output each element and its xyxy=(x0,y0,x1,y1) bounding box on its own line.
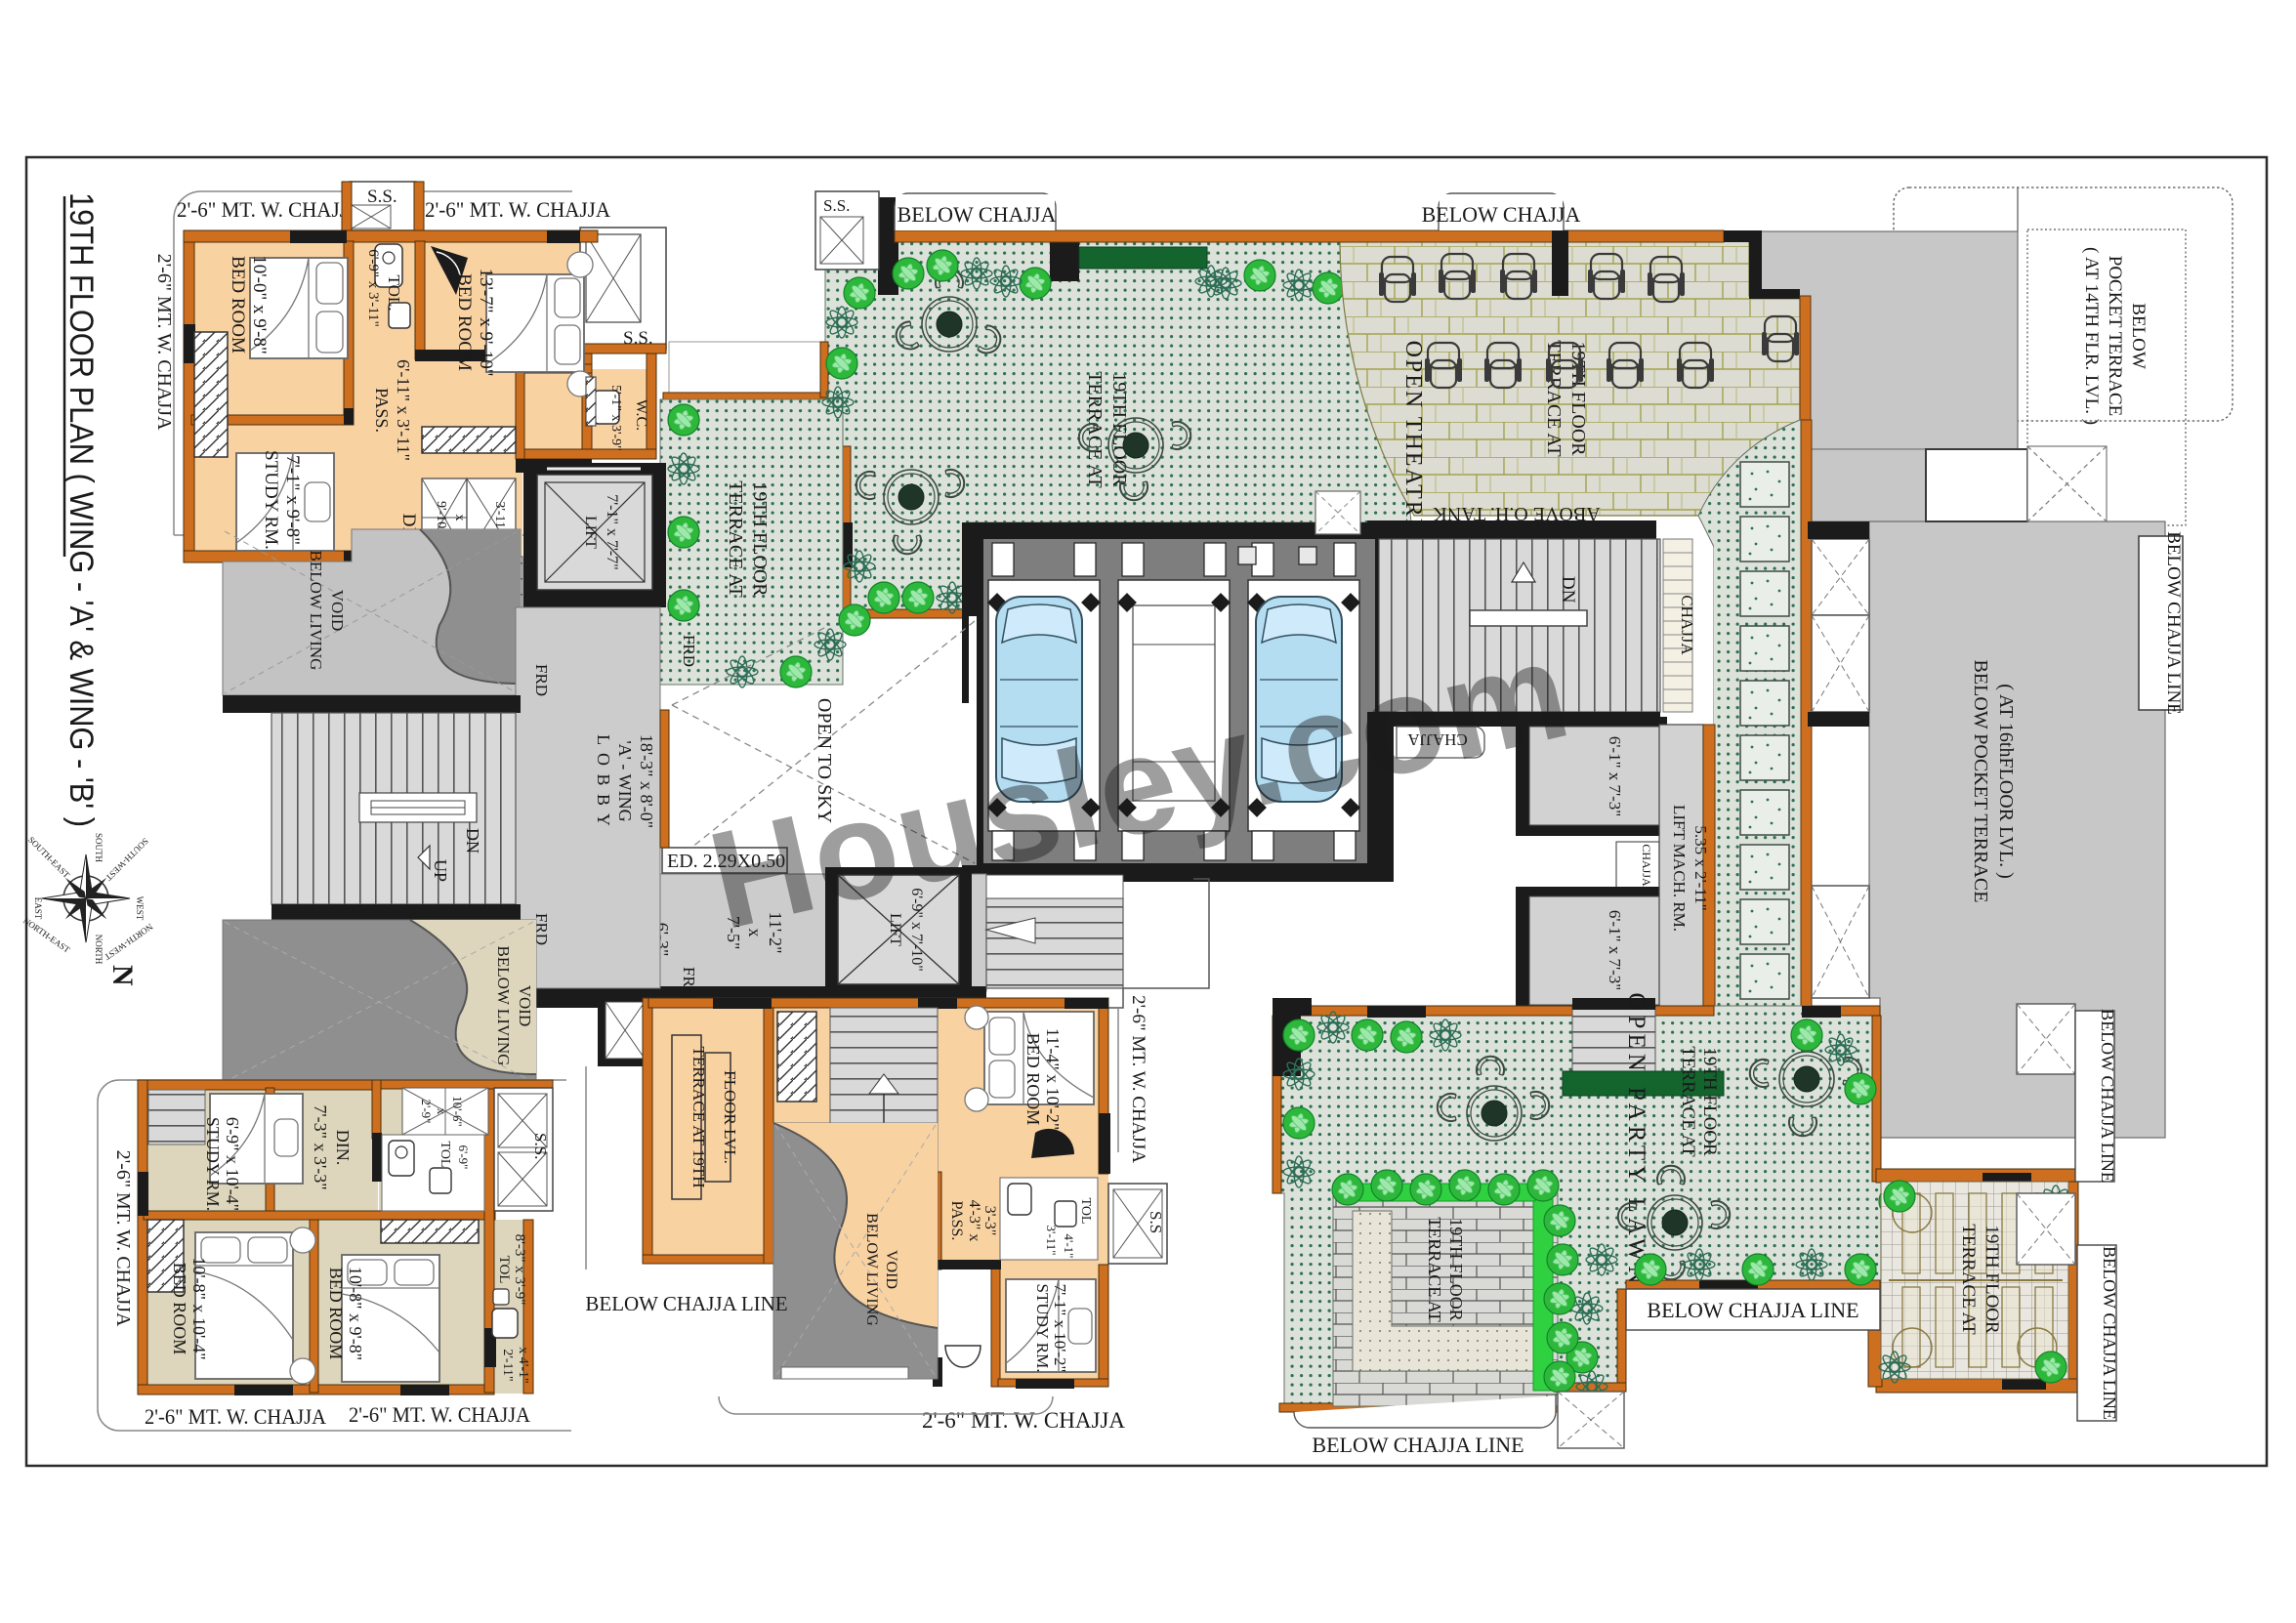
svg-text:BELOW CHAJJA LINE: BELOW CHAJJA LINE xyxy=(2163,531,2184,715)
svg-text:x 4'-1": x 4'-1" xyxy=(516,1347,530,1383)
svg-text:DN: DN xyxy=(1558,576,1578,603)
svg-text:19TH FLOOR: 19TH FLOOR xyxy=(749,481,771,597)
svg-text:10'-8" x 9'-8": 10'-8" x 9'-8" xyxy=(346,1267,365,1360)
svg-text:6'-9" x 10'-4": 6'-9" x 10'-4" xyxy=(223,1117,242,1211)
svg-text:19TH FLOOR: 19TH FLOOR xyxy=(1446,1218,1466,1321)
svg-text:x: x xyxy=(452,515,467,521)
svg-text:TERRACE AT: TERRACE AT xyxy=(1425,1217,1444,1322)
svg-text:7'-1" x 7'-7": 7'-1" x 7'-7" xyxy=(604,494,620,569)
svg-text:TOL: TOL xyxy=(438,1142,452,1168)
svg-text:'A' - WING: 'A' - WING xyxy=(615,740,635,821)
svg-text:FRD: FRD xyxy=(680,967,698,999)
svg-text:STUDY RM.: STUDY RM. xyxy=(203,1117,223,1211)
svg-text:FRD: FRD xyxy=(680,635,698,667)
svg-text:FRD: FRD xyxy=(532,664,551,696)
svg-text:BED ROOM: BED ROOM xyxy=(228,256,248,354)
svg-text:3'-11": 3'-11" xyxy=(1044,1226,1059,1256)
svg-text:LIFT MACH. RM.: LIFT MACH. RM. xyxy=(1670,805,1689,932)
svg-text:VOID: VOID xyxy=(883,1250,899,1289)
svg-text:2'-6" MT. W. CHAJJA: 2'-6" MT. W. CHAJJA xyxy=(177,197,362,222)
svg-text:2'-6" MT. W. CHAJJA: 2'-6" MT. W. CHAJJA xyxy=(1128,995,1148,1163)
svg-text:TERRACE AT: TERRACE AT xyxy=(1678,1046,1698,1157)
svg-text:2'-6" MT. W. CHAJJA: 2'-6" MT. W. CHAJJA xyxy=(153,254,175,431)
svg-text:BED ROOM: BED ROOM xyxy=(1023,1033,1043,1126)
svg-text:BELOW CHAJJA LINE: BELOW CHAJJA LINE xyxy=(1312,1433,1524,1457)
svg-text:S.S.: S.S. xyxy=(531,1133,550,1159)
svg-text:L O B B Y: L O B B Y xyxy=(594,734,613,828)
svg-text:BELOW CHAJJA LINE: BELOW CHAJJA LINE xyxy=(2100,1246,2119,1420)
svg-text:NORTH: NORTH xyxy=(94,935,104,965)
svg-text:2'-6" MT. W. CHAJJA: 2'-6" MT. W. CHAJJA xyxy=(922,1408,1125,1433)
svg-text:7'-1" x 9'-8": 7'-1" x 9'-8" xyxy=(282,455,303,545)
svg-text:7'-1" x 10'-2": 7'-1" x 10'-2" xyxy=(1051,1284,1069,1373)
svg-text:BELOW CHAJJA: BELOW CHAJJA xyxy=(1422,202,1581,227)
svg-text:UP: UP xyxy=(431,859,450,882)
svg-text:5'-1" x 3'-9": 5'-1" x 3'-9" xyxy=(608,385,623,451)
svg-text:6'-1" x 7'-3": 6'-1" x 7'-3" xyxy=(1606,910,1624,990)
svg-text:SOUTH: SOUTH xyxy=(94,833,104,863)
svg-text:18'-3" x 8'-0": 18'-3" x 8'-0" xyxy=(637,734,656,828)
svg-text:BED ROOM: BED ROOM xyxy=(326,1268,346,1360)
svg-text:BELOW CHAJJA LINE: BELOW CHAJJA LINE xyxy=(585,1292,787,1315)
svg-text:STUDY RM.: STUDY RM. xyxy=(261,450,281,550)
svg-text:BELOW CHAJJA: BELOW CHAJJA xyxy=(898,202,1057,227)
svg-text:6'-1" x 7'-3": 6'-1" x 7'-3" xyxy=(1606,736,1624,816)
svg-text:WEST: WEST xyxy=(135,896,145,921)
svg-text:VOID: VOID xyxy=(516,985,534,1027)
svg-text:10'-0" x 9'-8": 10'-0" x 9'-8" xyxy=(249,255,270,354)
svg-text:( AT 16thFLOOR LVL. ): ( AT 16thFLOOR LVL. ) xyxy=(1995,684,2017,878)
svg-text:2'-6" MT. W. CHAJJA: 2'-6" MT. W. CHAJJA xyxy=(145,1404,326,1429)
svg-text:2'-9": 2'-9" xyxy=(419,1100,434,1124)
svg-text:BELOW LIVING: BELOW LIVING xyxy=(307,551,325,671)
svg-text:PASS.: PASS. xyxy=(372,388,392,433)
svg-text:BELOW LIVING: BELOW LIVING xyxy=(494,946,513,1066)
svg-text:TOL: TOL xyxy=(496,1256,512,1284)
svg-text:6'-11" x 3'-11": 6'-11" x 3'-11" xyxy=(394,359,413,461)
svg-text:19TH FLOOR: 19TH FLOOR xyxy=(1982,1225,2002,1334)
svg-text:BELOW CHAJJA LINE: BELOW CHAJJA LINE xyxy=(2098,1009,2117,1183)
svg-text:4'-3" x: 4'-3" x xyxy=(966,1200,982,1242)
svg-text:VOID: VOID xyxy=(328,590,347,632)
svg-text:N: N xyxy=(106,965,139,986)
svg-text:CHAJJA: CHAJJA xyxy=(1678,595,1696,655)
svg-text:EAST: EAST xyxy=(33,897,43,920)
svg-text:8'-3" x 3'-9": 8'-3" x 3'-9" xyxy=(512,1234,527,1306)
svg-text:S.S.: S.S. xyxy=(823,196,850,215)
svg-text:W.C.: W.C. xyxy=(633,399,649,431)
svg-text:13'-7" x 9'-10": 13'-7" x 9'-10" xyxy=(476,268,496,376)
svg-text:TERRACE AT: TERRACE AT xyxy=(1958,1224,1979,1335)
svg-text:STUDY RM.: STUDY RM. xyxy=(1033,1284,1052,1373)
svg-text:19TH FLOOR: 19TH FLOOR xyxy=(1699,1047,1720,1156)
svg-text:10'-8" x 10'-4": 10'-8" x 10'-4" xyxy=(189,1257,209,1359)
svg-text:CHAJJA: CHAJJA xyxy=(1640,844,1653,887)
svg-text:6'-9" x 3'-11": 6'-9" x 3'-11" xyxy=(365,249,381,327)
svg-text:x: x xyxy=(435,1108,449,1115)
svg-text:PASS.: PASS. xyxy=(948,1201,965,1241)
svg-text:2'-6" MT. W. CHAJJA: 2'-6" MT. W. CHAJJA xyxy=(112,1150,134,1327)
svg-text:7'-3" x 3'-3": 7'-3" x 3'-3" xyxy=(311,1104,330,1189)
svg-text:BELOW LIVING: BELOW LIVING xyxy=(863,1213,880,1326)
svg-text:TOL.: TOL. xyxy=(385,275,403,312)
svg-text:BED ROOM: BED ROOM xyxy=(170,1263,189,1355)
svg-text:BELOW CHAJJA LINE: BELOW CHAJJA LINE xyxy=(1647,1298,1858,1322)
svg-text:2'-6" MT. W. CHAJJA: 2'-6" MT. W. CHAJJA xyxy=(349,1402,530,1427)
svg-text:2'-11": 2'-11" xyxy=(500,1349,515,1381)
svg-text:5.35 x 2'-11": 5.35 x 2'-11" xyxy=(1691,825,1710,910)
svg-text:OPEN THEATRE: OPEN THEATRE xyxy=(1400,341,1426,535)
svg-text:DIN.: DIN. xyxy=(333,1130,353,1166)
svg-text:BED ROOM: BED ROOM xyxy=(454,273,475,371)
svg-text:FLOOR LVL.: FLOOR LVL. xyxy=(721,1070,739,1164)
svg-text:LIFT: LIFT xyxy=(582,516,599,549)
svg-text:4'-1": 4'-1" xyxy=(1062,1234,1076,1259)
svg-text:10'-6": 10'-6" xyxy=(450,1096,465,1126)
svg-text:POCKET TERRACE: POCKET TERRACE xyxy=(2105,256,2125,417)
svg-text:S.S.: S.S. xyxy=(367,187,397,207)
svg-text:11'-4" x 10'-2": 11'-4" x 10'-2" xyxy=(1043,1028,1063,1131)
svg-text:S.S: S.S xyxy=(1147,1211,1165,1233)
svg-text:3'-3": 3'-3" xyxy=(981,1206,998,1236)
svg-text:19TH FLOOR: 19TH FLOOR xyxy=(1567,341,1589,456)
svg-text:19TH FLOOR PLAN ( WING - 'A' &: 19TH FLOOR PLAN ( WING - 'A' & WING - 'B… xyxy=(63,192,100,827)
svg-text:DN: DN xyxy=(463,828,482,853)
svg-text:BELOW: BELOW xyxy=(2128,303,2149,369)
svg-text:TOL: TOL xyxy=(1078,1198,1093,1225)
svg-text:6'-9": 6'-9" xyxy=(456,1145,471,1170)
svg-text:OPEN PARTY LAWN: OPEN PARTY LAWN xyxy=(1623,993,1649,1289)
svg-text:BELOW POCKET TERRACE: BELOW POCKET TERRACE xyxy=(1970,660,1991,903)
svg-text:TERRACE AT: TERRACE AT xyxy=(1543,340,1565,456)
svg-text:TERRACE AT: TERRACE AT xyxy=(725,480,746,597)
svg-text:2'-6" MT. W. CHAJJA: 2'-6" MT. W. CHAJJA xyxy=(425,197,610,222)
svg-text:( AT 14TH FLR. LVL. ): ( AT 14TH FLR. LVL. ) xyxy=(2081,247,2102,425)
